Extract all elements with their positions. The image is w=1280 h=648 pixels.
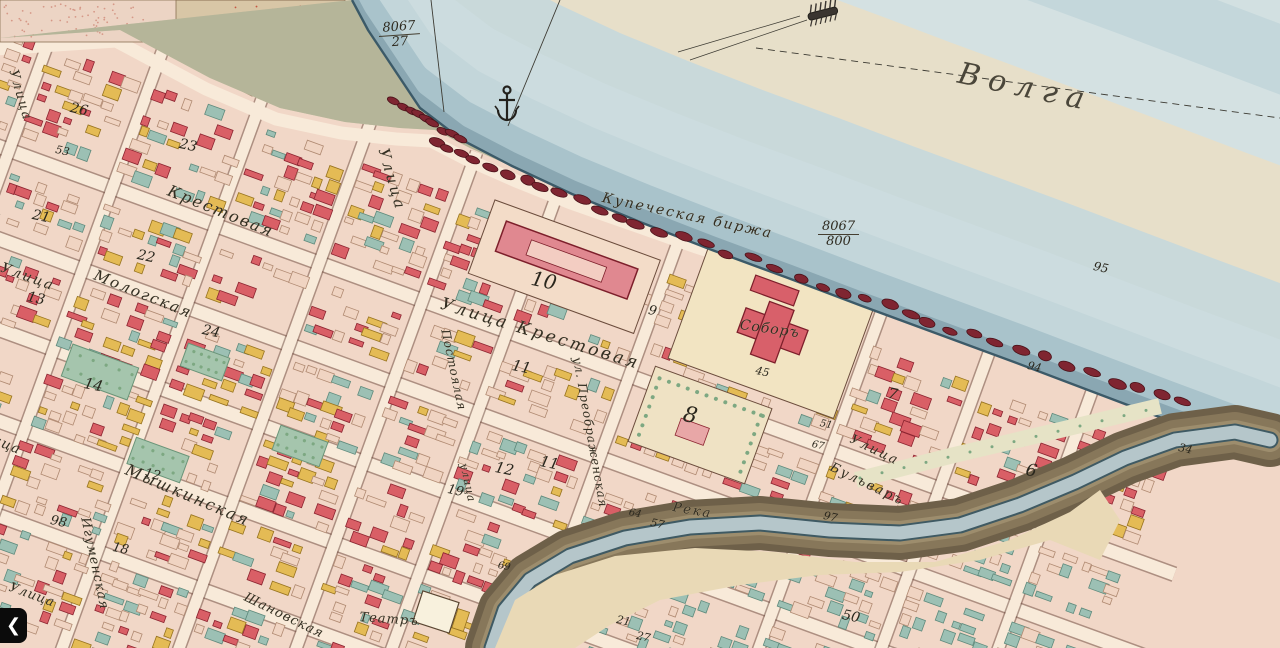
chevron-left-icon: ❮ [6, 615, 21, 636]
viewer-prev-button[interactable]: ❮ [0, 608, 27, 643]
map-canvas [0, 0, 1280, 648]
map-viewer: ВолгаКупеческая биржаСоборъУлица Крестов… [0, 0, 1280, 648]
